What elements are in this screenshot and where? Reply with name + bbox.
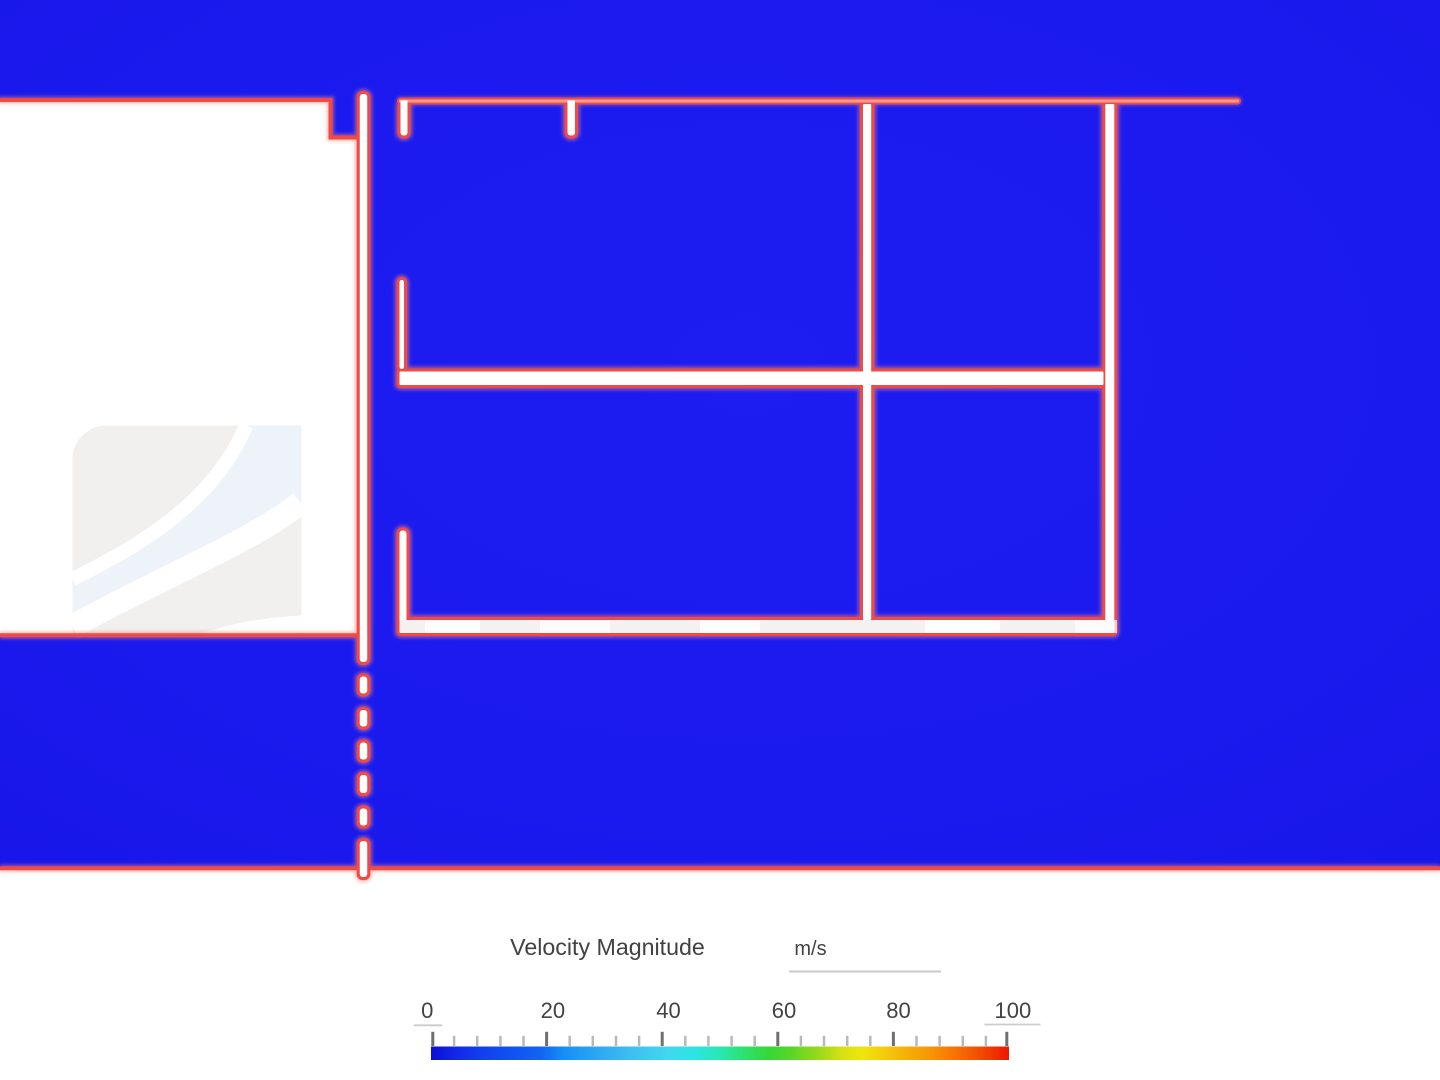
- svg-text:60: 60: [772, 998, 796, 1023]
- svg-text:m/s: m/s: [794, 938, 826, 960]
- svg-text:Velocity Magnitude: Velocity Magnitude: [510, 934, 705, 960]
- svg-text:100: 100: [995, 998, 1032, 1023]
- svg-text:0: 0: [421, 998, 433, 1023]
- svg-text:20: 20: [541, 998, 565, 1023]
- svg-text:40: 40: [656, 998, 680, 1023]
- svg-text:80: 80: [886, 998, 910, 1023]
